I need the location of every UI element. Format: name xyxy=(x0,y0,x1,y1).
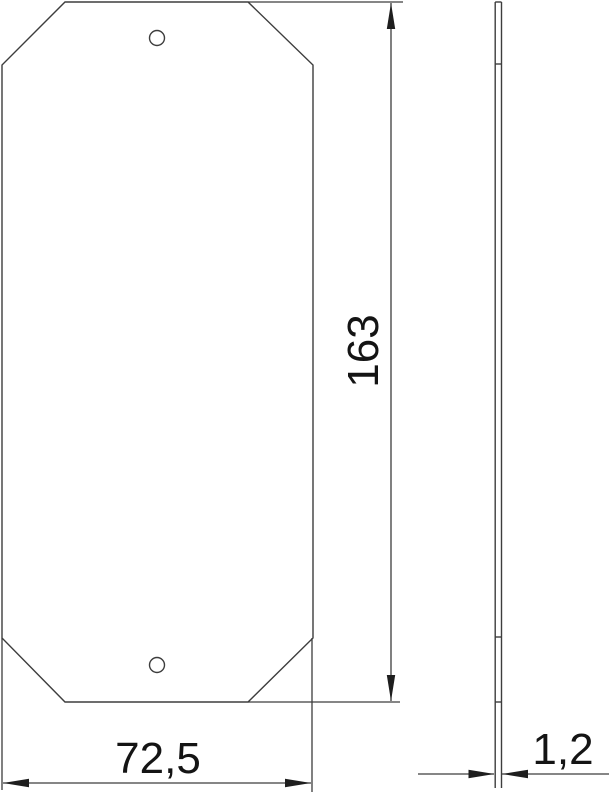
width-arrow-right-icon xyxy=(285,779,311,787)
front-view-plate-outline xyxy=(2,2,313,702)
height-arrow-up-icon xyxy=(387,3,395,29)
height-dimension-label: 163 xyxy=(342,314,386,387)
drawing-canvas: 163 72,5 1,2 xyxy=(0,0,609,794)
width-arrow-left-icon xyxy=(3,779,29,787)
thickness-arrow-right-icon xyxy=(469,770,495,778)
height-arrow-down-icon xyxy=(387,675,395,701)
thickness-dimension-label: 1,2 xyxy=(532,728,593,772)
front-view-top-hole xyxy=(150,31,165,46)
thickness-arrow-left-icon xyxy=(502,770,528,778)
drawing-linework xyxy=(0,0,609,794)
front-view-bottom-hole xyxy=(150,658,165,673)
width-dimension-label: 72,5 xyxy=(115,737,201,781)
